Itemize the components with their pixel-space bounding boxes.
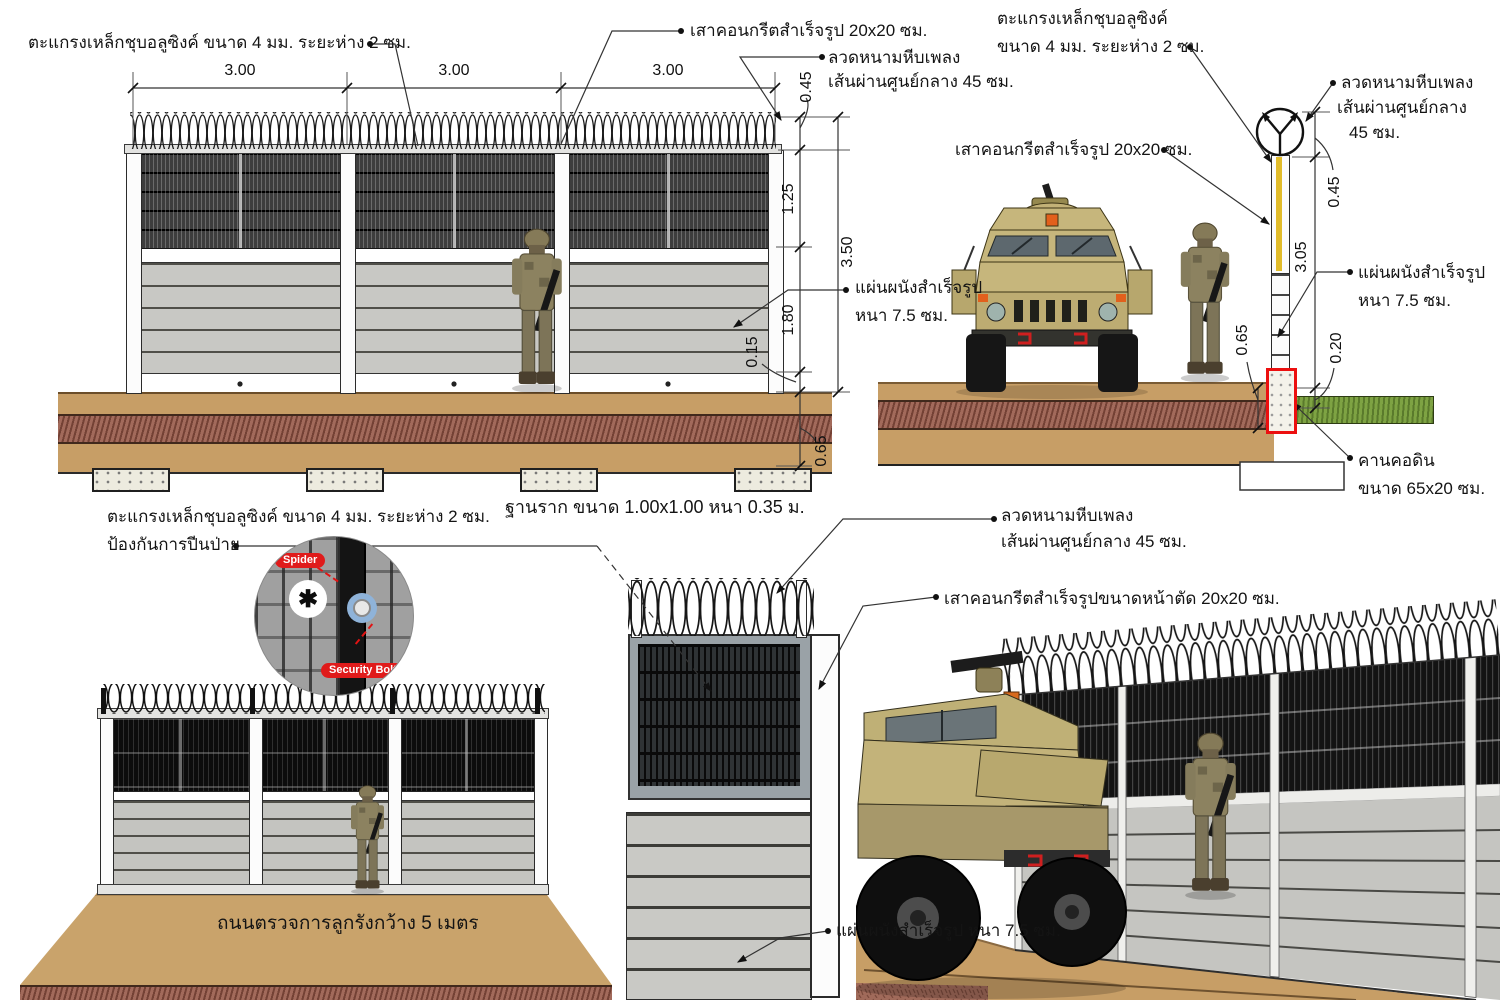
wall-post [340, 150, 356, 394]
mesh-panel-dark [261, 717, 390, 792]
mesh-panel [568, 152, 770, 249]
dim-panel-front: 1.80 [780, 293, 798, 347]
panel-label-front-1: แผ่นผนังสำเร็จรูป [855, 277, 982, 299]
footing-block [734, 468, 812, 492]
concertina-label-section-2: เส้นผ่านศูนย์กลาง [1337, 97, 1467, 119]
spider-badge: Spider [275, 553, 325, 568]
construction-drawing-sheet: ✱ Spider Security Bolt [0, 0, 1500, 1000]
mesh-panel-divider [323, 718, 326, 791]
concrete-panel [626, 812, 812, 1000]
mesh-panel-dark [112, 717, 251, 792]
wall-post [249, 708, 263, 895]
panel-label-front-2: หนา 7.5 ซม. [855, 305, 948, 327]
wall-post [100, 708, 114, 895]
platform-gravel [878, 400, 1274, 430]
mesh-panel-divider [179, 718, 182, 791]
mesh-panel-divider [239, 153, 242, 248]
dim-embed-section: 0.20 [1328, 321, 1346, 375]
dim-total-front: 3.50 [839, 225, 857, 279]
concrete-panel [112, 800, 251, 886]
panel-label-bottom: แผ่นผนังสำเร็จรูป หนา 7.5 ซม. [836, 920, 1061, 942]
concertina-label-front-2: เส้นผ่านศูนย์กลาง 45 ซม. [828, 71, 1014, 93]
footing-caption: ฐานราก ขนาด 1.00x1.00 หนา 0.35 ม. [505, 492, 805, 521]
platform-ground [878, 382, 1274, 466]
anti-climb-label-2: ป้องกันการปีนป่าย [107, 534, 240, 556]
concertina-label-section-1: ลวดหนามหีบเพลง [1341, 72, 1473, 94]
wall-post [534, 708, 548, 895]
wall-post [810, 634, 840, 998]
mesh-panel-dark [400, 717, 536, 792]
wall-top-rail [124, 144, 782, 154]
section-post-lower [1271, 273, 1290, 375]
mesh-panel [638, 644, 800, 786]
dim-coil-section: 0.45 [1326, 165, 1344, 219]
mesh-panel-divider [453, 153, 456, 248]
post-label-front: เสาคอนกรีตสำเร็จรูป 20x20 ซม. [690, 20, 927, 42]
ground-beam-label-2: ขนาด 65x20 ซม. [1358, 478, 1485, 500]
concrete-panel [140, 262, 342, 374]
dim-plank-front: 0.15 [744, 325, 762, 379]
concertina-label-front-1: ลวดหนามหีบเพลง [828, 47, 960, 69]
road-gravel-edge [20, 985, 612, 1000]
spider-clip-glyph: ✱ [298, 585, 318, 614]
anti-climb-label-1: ตะแกรงเหล็กชุบอลูซิงค์ ขนาด 4 มม. ระยะห่… [107, 506, 490, 528]
mesh-spec-label-front: ตะแกรงเหล็กชุบอลูซิงค์ ขนาด 4 มม. ระยะห่… [28, 32, 411, 54]
grass-strip [1292, 396, 1434, 424]
coil-support-post [796, 580, 807, 638]
mesh-panel [140, 152, 342, 249]
security-bolt-icon [347, 593, 377, 623]
footing-block [306, 468, 384, 492]
panel-label-section-2: หนา 7.5 ซม. [1358, 290, 1451, 312]
mesh-panel [354, 152, 556, 249]
anti-climb-detail-circle: ✱ Spider Security Bolt [254, 536, 414, 696]
concrete-panel [568, 262, 770, 374]
mesh-panel-divider [465, 718, 468, 791]
bay-section-view [600, 560, 860, 1000]
gravel-layer [58, 414, 832, 444]
mesh-spec-label-section-2: ขนาด 4 มม. ระยะห่าง 2 ซม. [997, 36, 1204, 58]
ground-beam-label-1: คานคอดิน [1358, 450, 1435, 472]
mesh-spec-label-section-1: ตะแกรงเหล็กชุบอลูซิงค์ [997, 8, 1168, 30]
wall-bottom-rail [97, 884, 549, 895]
mesh-panel-frame [628, 634, 814, 800]
wall-post [554, 150, 570, 394]
concertina-label-section-3: 45 ซม. [1349, 122, 1400, 144]
footing-block [92, 468, 170, 492]
post-label-section: เสาคอนกรีตสำเร็จรูป 20x20 ซม. [955, 139, 1192, 161]
wall-top-rail [97, 708, 549, 719]
concrete-panel [261, 800, 390, 886]
wall-post [388, 708, 402, 895]
bolt-head [353, 599, 371, 617]
mesh-panel-divider [667, 153, 670, 248]
wall-post [126, 150, 142, 394]
dim-coil-front: 0.45 [798, 60, 816, 114]
concert-label-mid-2: เส้นผ่านศูนย์กลาง 45 ซม. [1001, 531, 1187, 553]
concrete-panel [400, 800, 536, 886]
dim-post-section: 3.05 [1293, 230, 1311, 284]
road-caption: ถนนตรวจการลูกรังกว้าง 5 เมตร [217, 908, 479, 938]
concert-label-mid-1: ลวดหนามหีบเพลง [1001, 505, 1133, 527]
bay-dim-3: 3.00 [641, 62, 695, 80]
coil-support-post [631, 580, 642, 638]
dim-mesh-front: 1.25 [780, 172, 798, 226]
dim-foundation-front: 0.65 [813, 424, 831, 478]
concrete-panel [354, 262, 556, 374]
security-bolt-badge: Security Bolt [321, 663, 405, 678]
dim-foundation-section: 0.65 [1234, 313, 1252, 367]
section-post-mesh-marker [1276, 157, 1282, 271]
ground-beam-highlight [1266, 368, 1297, 434]
post-section-label-mid: เสาคอนกรีตสำเร็จรูปขนาดหน้าตัด 20x20 ซม. [944, 588, 1280, 610]
inspection-road [20, 893, 612, 985]
ground-layer [58, 392, 832, 474]
panel-label-section-1: แผ่นผนังสำเร็จรูป [1358, 262, 1485, 284]
footing-block [520, 468, 598, 492]
bay-dim-2: 3.00 [427, 62, 481, 80]
bay-dim-1: 3.00 [213, 62, 267, 80]
spider-clip-icon: ✱ [289, 580, 327, 618]
